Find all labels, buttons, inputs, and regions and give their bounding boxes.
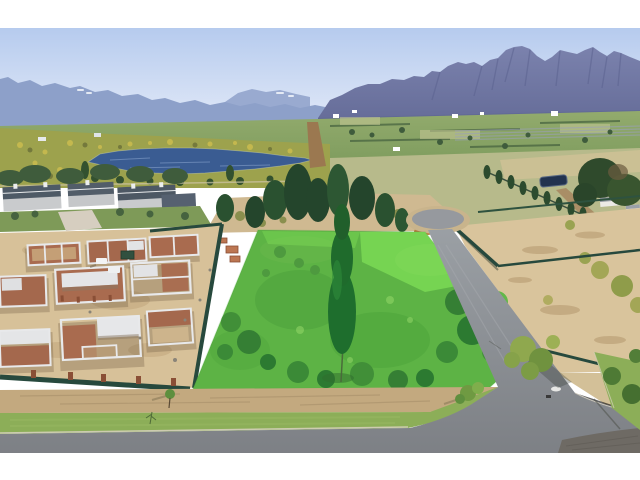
dirt-strip <box>0 387 498 413</box>
structure-frame <box>144 308 197 352</box>
brick-pallets <box>218 238 240 262</box>
structure-frame <box>128 260 194 302</box>
letterbox-bottom <box>0 453 640 480</box>
object-on-road <box>546 395 551 398</box>
letterbox-top <box>0 0 640 28</box>
small-shed <box>38 137 46 141</box>
structure-frame <box>0 275 50 314</box>
structure-frame <box>58 316 145 371</box>
structure-frame <box>0 329 54 374</box>
aerial-photo-frame <box>0 0 640 480</box>
aerial-photo <box>0 0 640 480</box>
reservoir <box>540 175 568 188</box>
structure-frame <box>147 235 200 265</box>
small-shed <box>94 133 101 137</box>
